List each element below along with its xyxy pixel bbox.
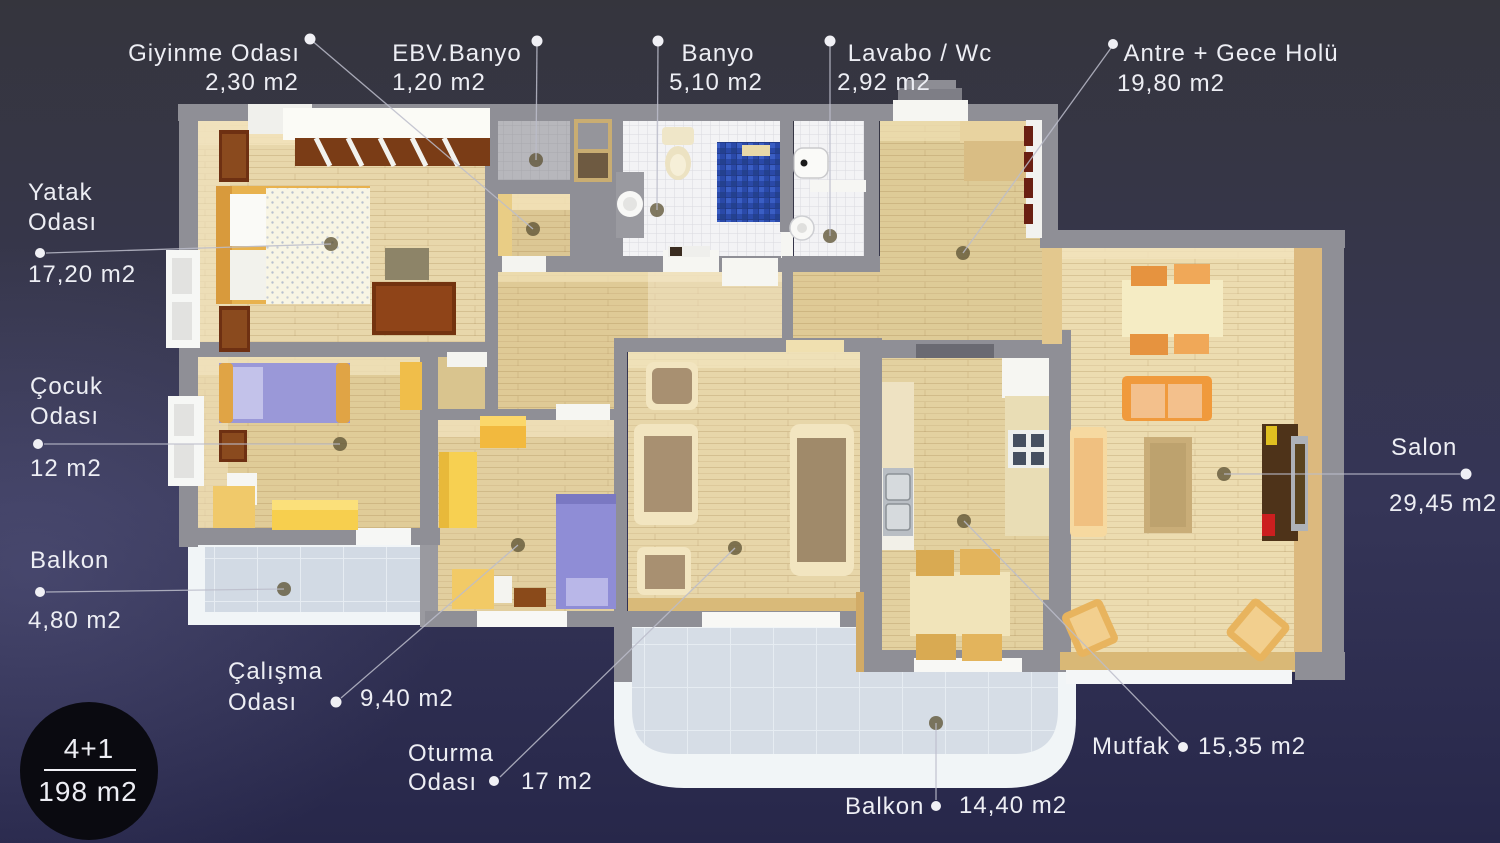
svg-text:2,92 m2: 2,92 m2 — [837, 69, 931, 96]
svg-text:Odası: Odası — [28, 209, 97, 236]
svg-text:12 m2: 12 m2 — [30, 455, 102, 482]
svg-text:Odası: Odası — [228, 689, 297, 716]
svg-text:Antre + Gece Holü: Antre + Gece Holü — [1123, 40, 1338, 67]
svg-text:17 m2: 17 m2 — [521, 768, 593, 795]
svg-text:17,20 m2: 17,20 m2 — [28, 261, 136, 288]
svg-text:2,30 m2: 2,30 m2 — [205, 69, 299, 96]
svg-text:14,40 m2: 14,40 m2 — [959, 792, 1067, 819]
svg-text:Balkon: Balkon — [845, 793, 924, 820]
svg-text:EBV.Banyo: EBV.Banyo — [392, 40, 522, 67]
svg-text:5,10 m2: 5,10 m2 — [669, 69, 763, 96]
svg-text:Mutfak: Mutfak — [1092, 733, 1170, 760]
svg-text:9,40 m2: 9,40 m2 — [360, 685, 454, 712]
svg-text:Giyinme Odası: Giyinme Odası — [128, 40, 300, 67]
svg-text:Balkon: Balkon — [30, 547, 109, 574]
svg-text:4,80 m2: 4,80 m2 — [28, 607, 122, 634]
svg-text:4+1: 4+1 — [64, 733, 115, 764]
svg-text:Odası: Odası — [30, 403, 99, 430]
svg-text:29,45 m2: 29,45 m2 — [1389, 490, 1497, 517]
svg-text:Oturma: Oturma — [408, 740, 494, 767]
svg-text:1,20 m2: 1,20 m2 — [392, 69, 486, 96]
svg-text:Odası: Odası — [408, 769, 477, 796]
svg-text:Çocuk: Çocuk — [30, 373, 103, 400]
svg-text:15,35 m2: 15,35 m2 — [1198, 733, 1306, 760]
svg-text:Çalışma: Çalışma — [228, 658, 323, 685]
svg-text:Banyo: Banyo — [681, 40, 754, 67]
svg-text:Salon: Salon — [1391, 434, 1457, 461]
svg-text:198 m2: 198 m2 — [38, 776, 137, 807]
svg-text:Yatak: Yatak — [28, 179, 93, 206]
svg-text:Lavabo / Wc: Lavabo / Wc — [848, 40, 992, 67]
svg-text:19,80 m2: 19,80 m2 — [1117, 70, 1225, 97]
